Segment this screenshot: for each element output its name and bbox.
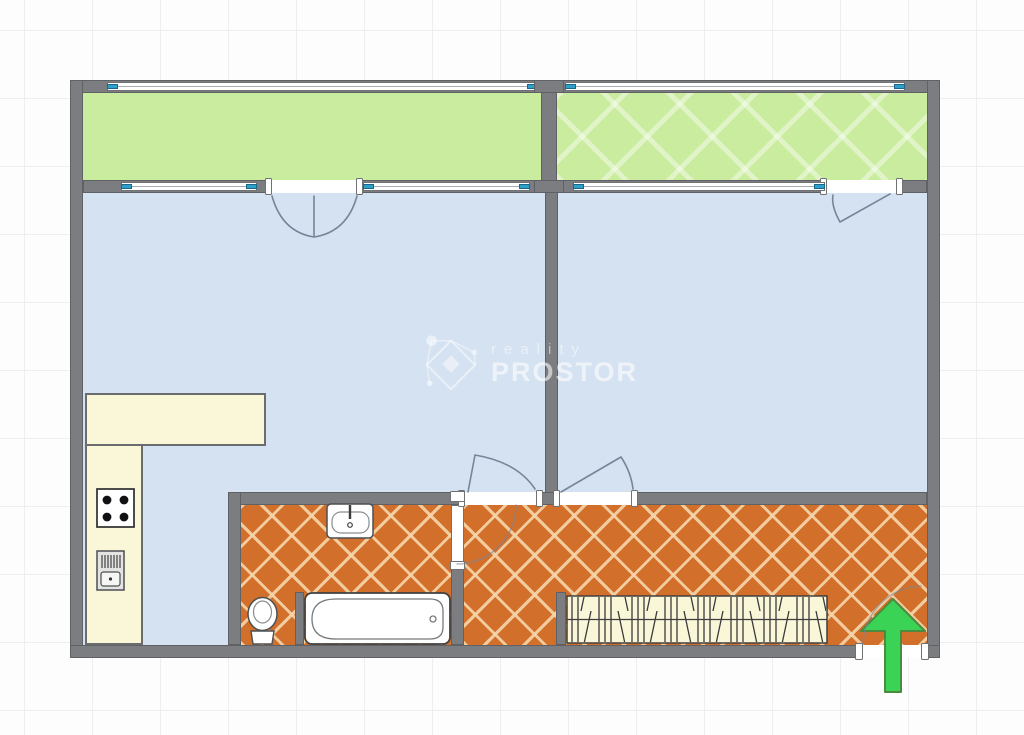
window-glass-cap — [894, 84, 905, 89]
wall-bathroom-right-stub — [451, 567, 464, 645]
wall-balcony-divider — [541, 80, 557, 193]
door-post — [536, 490, 543, 507]
balcony-divider-cap-top — [534, 80, 564, 93]
balcony-left-floor — [83, 93, 541, 180]
window-glass-cap — [107, 84, 118, 89]
window-frame-line — [366, 186, 527, 187]
window-glass-cap — [246, 184, 257, 189]
door-post — [356, 178, 363, 195]
door-post — [855, 643, 863, 660]
bathroom-floor — [241, 505, 451, 645]
watermark-text: reality PROSTOR — [491, 342, 638, 387]
balcony-right-floor — [557, 93, 927, 180]
window-living-room-right — [363, 182, 530, 191]
bathroom-door-leaf — [451, 505, 464, 567]
wall-tub-stub — [295, 592, 304, 645]
door-post — [896, 178, 903, 195]
balcony-divider-cap-bottom — [534, 180, 564, 193]
door-post — [921, 643, 929, 660]
window-living-room-left — [121, 182, 257, 191]
window-frame-line — [568, 86, 902, 87]
door-post — [265, 178, 272, 195]
wall-right — [927, 80, 940, 658]
window-frame-line — [110, 86, 535, 87]
watermark-logo-icon — [420, 333, 482, 395]
watermark-line2: PROSTOR — [491, 358, 638, 386]
hallway-floor — [464, 505, 927, 645]
balcony-door-opening-right — [827, 180, 897, 193]
window-glass-cap — [121, 184, 132, 189]
window-glass-cap — [519, 184, 530, 189]
window-bedroom — [573, 182, 825, 191]
door-post — [450, 491, 465, 502]
balcony-door-opening-left — [272, 180, 357, 193]
wall-left — [70, 80, 83, 658]
living-room-door-opening — [465, 492, 536, 505]
window-frame-line — [124, 186, 254, 187]
floor-plan: reality PROSTOR — [0, 0, 1024, 735]
entrance-door-opening — [862, 645, 923, 658]
watermark-line1: reality — [491, 342, 638, 359]
kitchen-counter-side — [85, 444, 143, 645]
window-frame-line — [576, 186, 822, 187]
watermark: reality PROSTOR — [420, 333, 638, 395]
window-glass-cap — [573, 184, 584, 189]
wall-bathroom-left — [228, 492, 241, 645]
bedroom-door-opening — [560, 492, 631, 505]
door-post — [553, 490, 560, 507]
wall-bottom-left — [70, 645, 862, 658]
window-glass-cap — [363, 184, 374, 189]
door-post — [450, 561, 465, 570]
door-post — [631, 490, 638, 507]
window-glass-cap — [565, 84, 576, 89]
window-balcony-right-outer — [565, 82, 905, 91]
kitchen-counter-top — [85, 393, 266, 446]
window-balcony-left-outer — [107, 82, 538, 91]
window-glass-cap — [814, 184, 825, 189]
wall-wardrobe-stub — [556, 592, 566, 645]
